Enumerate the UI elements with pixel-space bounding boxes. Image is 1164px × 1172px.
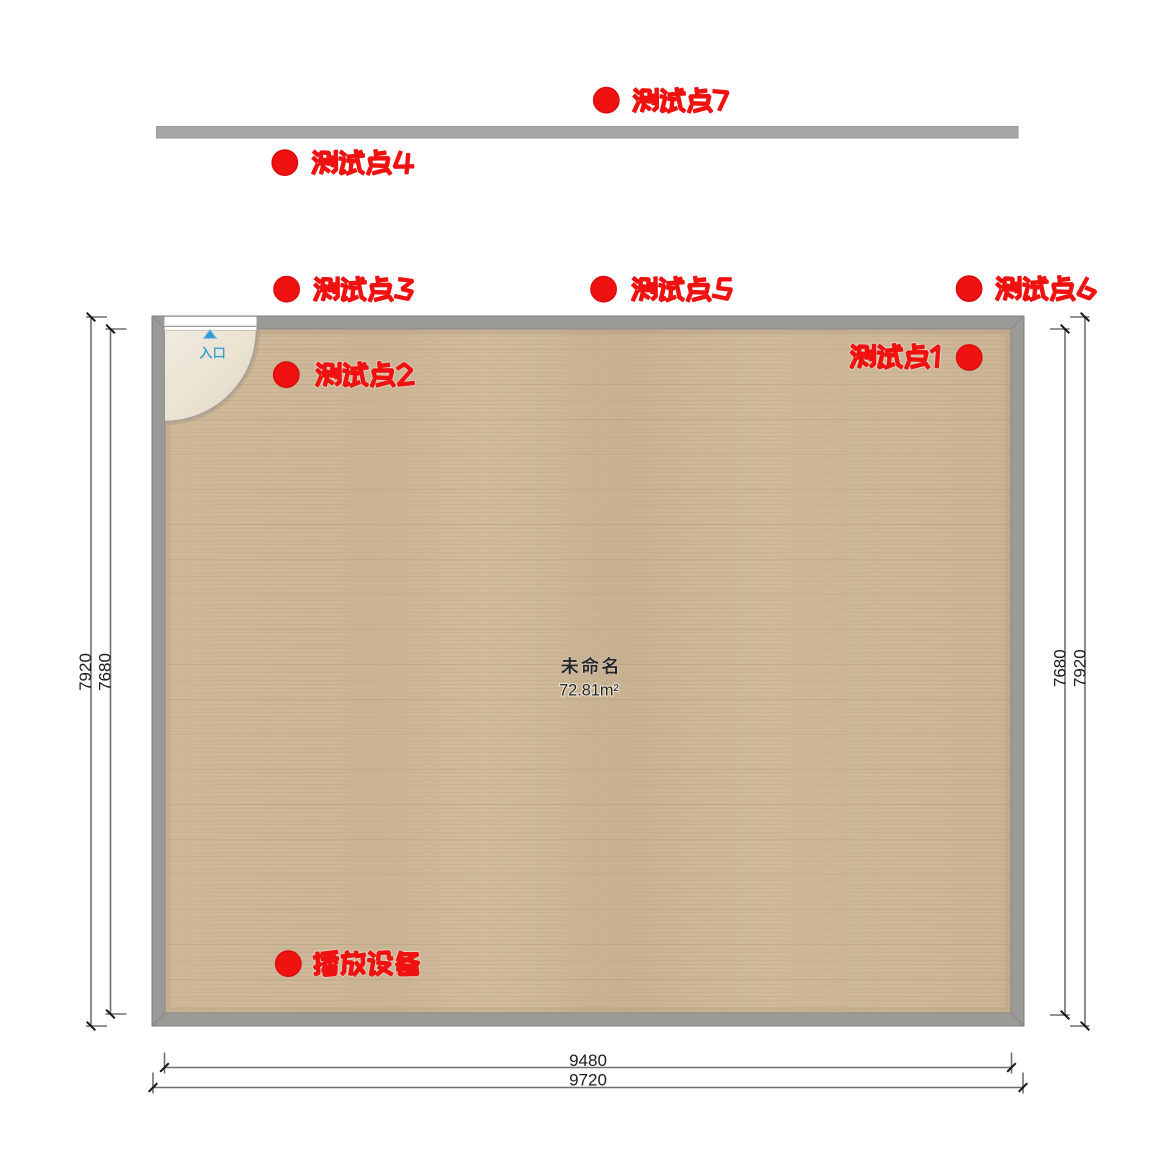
- svg-text:7680: 7680: [95, 653, 114, 691]
- svg-text:7680: 7680: [1051, 649, 1070, 687]
- svg-text:7920: 7920: [76, 653, 95, 691]
- svg-text:9480: 9480: [569, 1051, 607, 1070]
- svg-text:7920: 7920: [1070, 649, 1089, 687]
- svg-text:9720: 9720: [569, 1071, 607, 1090]
- svg-text:72.81m²: 72.81m²: [559, 681, 619, 699]
